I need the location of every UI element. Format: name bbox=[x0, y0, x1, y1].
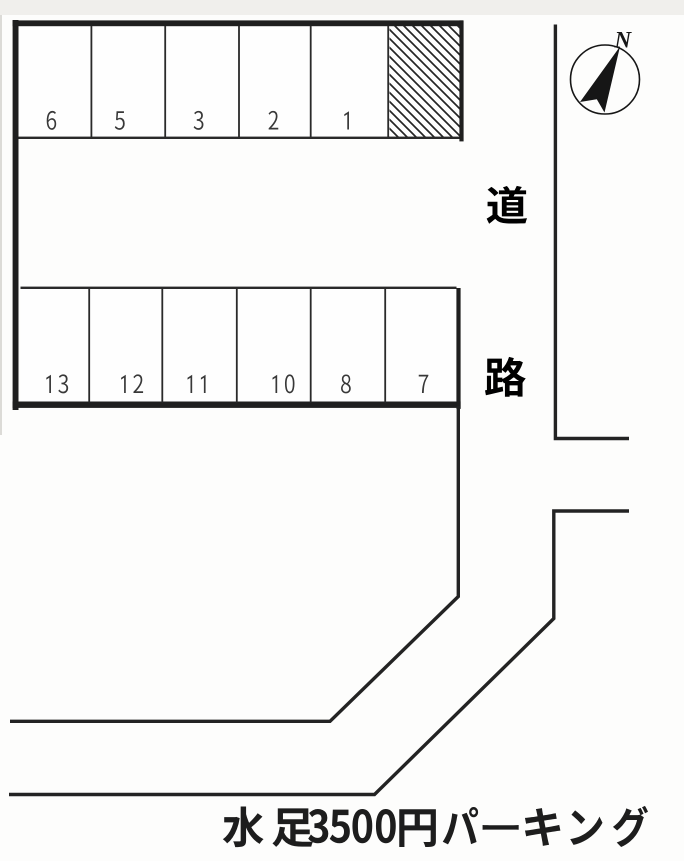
svg-text:N: N bbox=[614, 28, 633, 53]
